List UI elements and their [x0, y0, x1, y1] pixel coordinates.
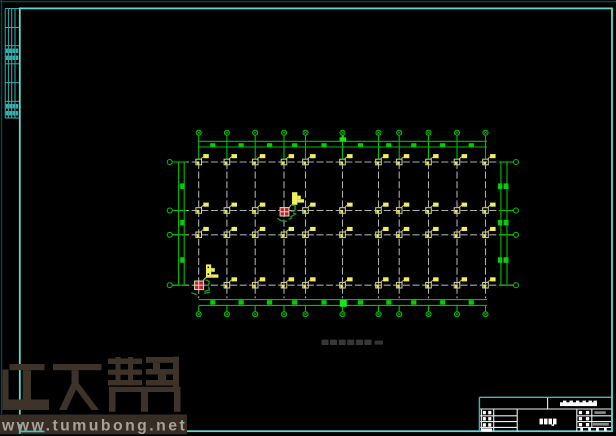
svg-text:www.tumubong.net: www.tumubong.net [1, 418, 187, 435]
